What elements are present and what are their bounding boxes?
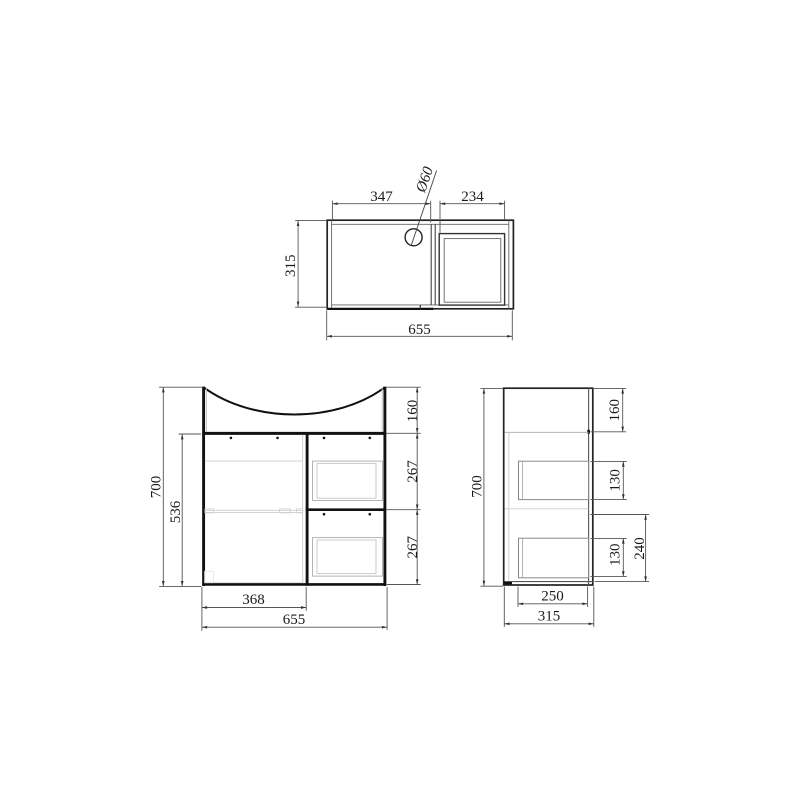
svg-text:700: 700: [470, 475, 486, 498]
svg-text:347: 347: [370, 189, 393, 205]
svg-text:655: 655: [408, 322, 431, 338]
svg-text:315: 315: [538, 608, 561, 624]
svg-text:315: 315: [283, 255, 299, 278]
svg-text:267: 267: [405, 460, 421, 483]
svg-text:250: 250: [541, 588, 564, 604]
svg-text:130: 130: [608, 469, 624, 492]
svg-text:536: 536: [168, 500, 184, 523]
svg-text:234: 234: [461, 189, 484, 205]
svg-text:700: 700: [148, 476, 164, 499]
svg-text:267: 267: [405, 535, 421, 558]
svg-text:655: 655: [283, 612, 306, 628]
svg-text:368: 368: [242, 592, 265, 608]
svg-text:240: 240: [632, 537, 648, 560]
svg-text:160: 160: [405, 400, 421, 423]
svg-text:130: 130: [608, 544, 624, 567]
svg-text:160: 160: [607, 399, 623, 422]
